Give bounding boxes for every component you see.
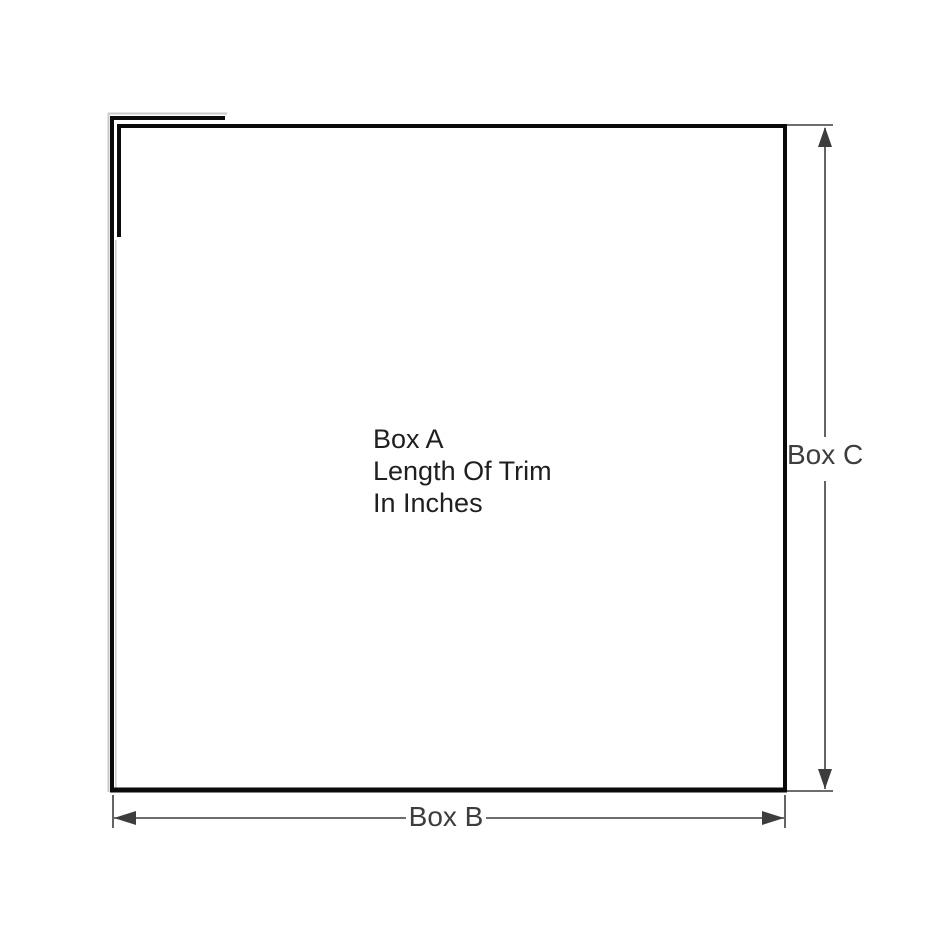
box-a-label-line1: Box A bbox=[373, 423, 552, 455]
arrow-down-icon bbox=[818, 769, 832, 789]
box-b-label: Box B bbox=[406, 802, 486, 832]
box-a-label: Box A Length Of Trim In Inches bbox=[373, 423, 552, 519]
box-a-label-line3: In Inches bbox=[373, 487, 552, 519]
arrow-left-icon bbox=[114, 811, 136, 825]
box-a-label-line2: Length Of Trim bbox=[373, 455, 552, 487]
arrow-up-icon bbox=[818, 127, 832, 147]
trim-measurement-diagram: Box A Length Of Trim In Inches Box B Box… bbox=[0, 0, 936, 937]
arrow-right-icon bbox=[762, 811, 784, 825]
box-c-label: Box C bbox=[787, 440, 863, 470]
